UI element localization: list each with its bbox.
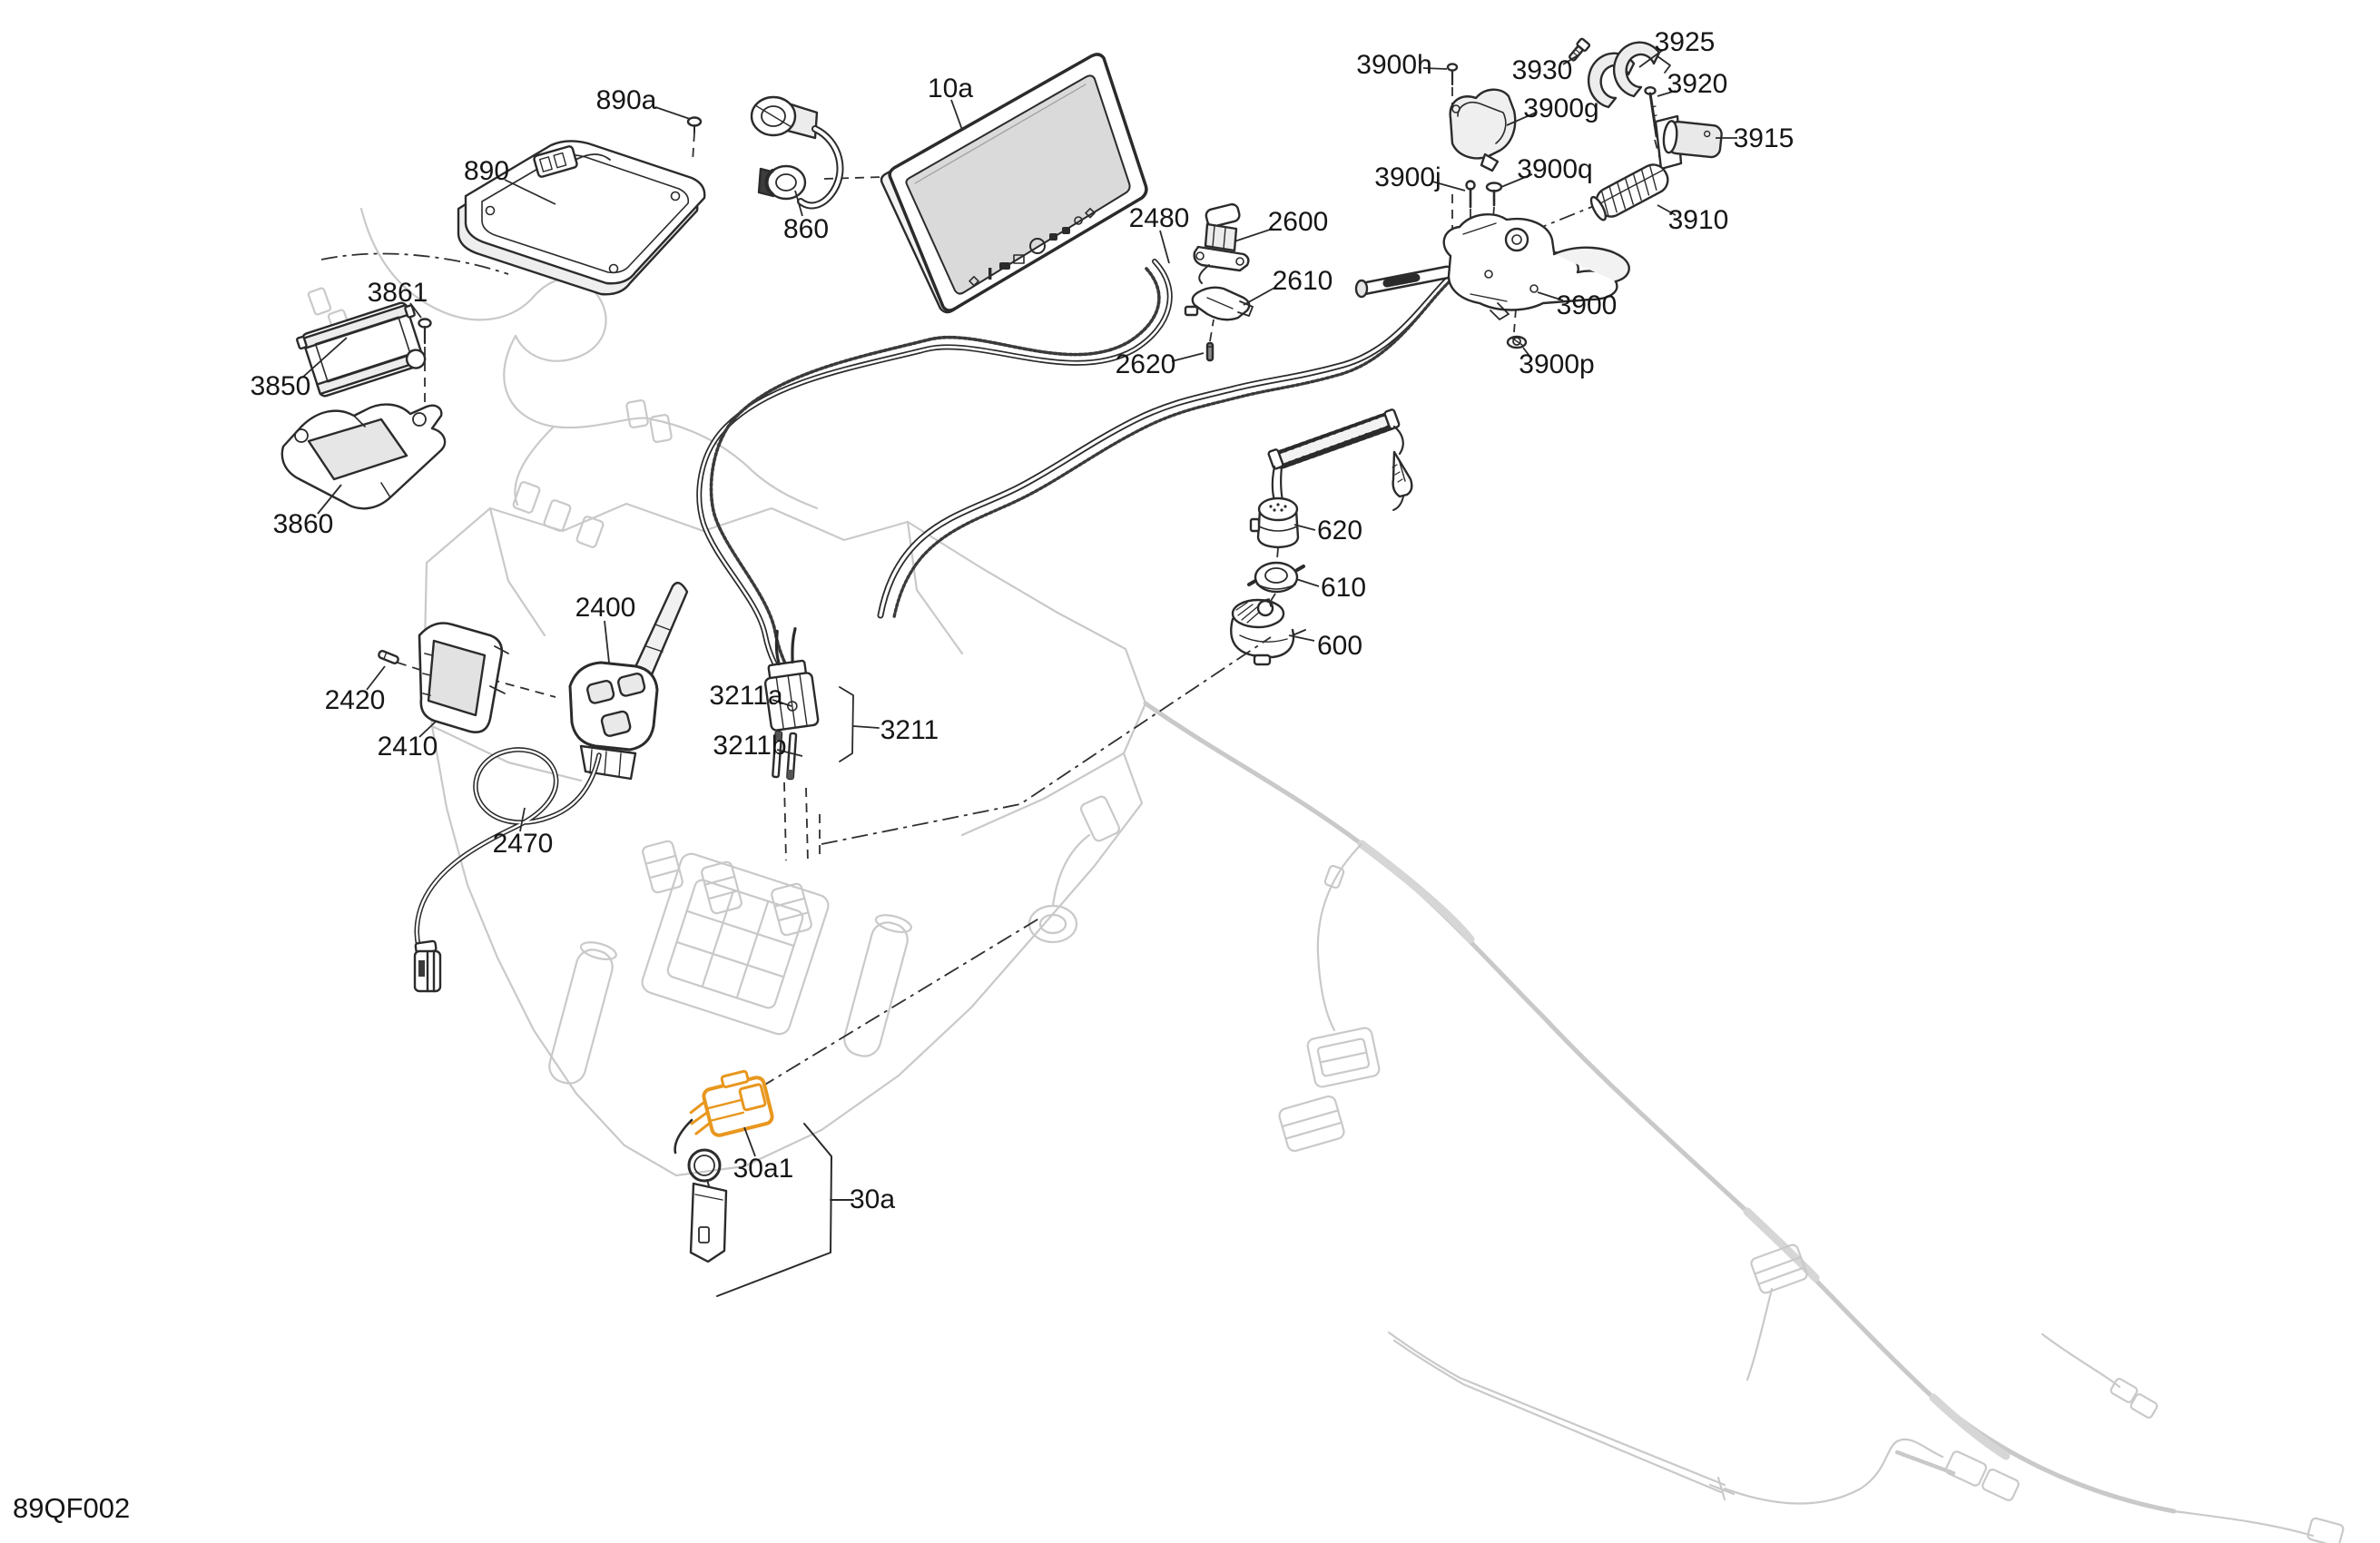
callout-610: 610 [1321, 573, 1366, 603]
callout-3920: 3920 [1667, 69, 1728, 99]
part-890-module [458, 118, 704, 295]
callout-30a: 30a [850, 1184, 895, 1214]
callout-3925: 3925 [1655, 27, 1716, 57]
callout-3910: 3910 [1668, 205, 1729, 235]
parts-diagram-page: 890a 890 860 10a 2480 2600 2610 2620 390… [0, 0, 2380, 1543]
callout-3915: 3915 [1734, 123, 1795, 153]
callout-860: 860 [783, 214, 829, 244]
part-2480-cable [699, 261, 1169, 683]
part-890a-screw [688, 118, 701, 133]
callout-3211a: 3211a [709, 681, 783, 711]
callout-2420: 2420 [325, 685, 386, 715]
part-600-dess-post [1231, 599, 1305, 664]
part-3915-cylinder [1656, 116, 1723, 169]
callout-3900: 3900 [1557, 290, 1618, 320]
part-2610-bracket [1185, 288, 1253, 320]
callout-2410: 2410 [378, 732, 438, 762]
callout-2470: 2470 [493, 829, 554, 859]
part-10a-display [881, 54, 1146, 312]
callout-2610: 2610 [1273, 266, 1333, 296]
part-2620-pin [1207, 343, 1213, 360]
part-620-tether-cap [1251, 498, 1298, 547]
callout-2400: 2400 [575, 593, 636, 623]
callout-2600: 2600 [1268, 207, 1329, 237]
callout-3900q: 3900q [1517, 154, 1592, 184]
callout-3860: 3860 [273, 509, 334, 539]
part-3900j-screw [1467, 182, 1475, 208]
part-30a-bracket-mark [717, 1124, 853, 1296]
part-610-ring-nut [1249, 563, 1303, 592]
callout-3211: 3211 [880, 715, 939, 745]
part-handlebar-cable [880, 270, 1457, 617]
exploded-parts-diagram: 890a 890 860 10a 2480 2600 2610 2620 390… [0, 0, 2380, 1543]
callout-3900p: 3900p [1519, 349, 1594, 379]
part-3900p-screw [1508, 337, 1526, 348]
callout-890a: 890a [596, 85, 657, 115]
part-3211-bracket-mark [840, 687, 879, 762]
part-2600-switch [1195, 203, 1249, 283]
callout-3861: 3861 [368, 278, 428, 308]
callout-2480: 2480 [1129, 203, 1190, 233]
part-3860-bracket [282, 405, 445, 509]
part-tether-coil [1268, 409, 1411, 510]
callout-3850: 3850 [251, 371, 311, 401]
callout-3900h: 3900h [1356, 50, 1431, 80]
callout-3211b: 3211b [713, 731, 786, 761]
figure-code: 89QF002 [13, 1492, 130, 1524]
part-3900g-bracket [1451, 90, 1516, 171]
tether-clip [1392, 452, 1411, 510]
callout-3900g: 3900g [1523, 93, 1598, 123]
callout-10a: 10a [928, 74, 973, 103]
callout-890: 890 [464, 156, 509, 186]
callout-600: 600 [1317, 631, 1362, 661]
callout-2620: 2620 [1116, 349, 1176, 379]
part-2410-cover [419, 624, 508, 732]
callout-3900j: 3900j [1374, 162, 1441, 192]
part-3861-screw [419, 319, 431, 344]
part-3900h-screw [1448, 64, 1457, 84]
tether-tag [691, 1184, 726, 1262]
callout-620: 620 [1317, 516, 1362, 545]
part-3910-sleeve [1588, 160, 1673, 223]
callout-30a1: 30a1 [733, 1154, 794, 1184]
callout-3930: 3930 [1512, 55, 1573, 85]
part-2420-pin [378, 650, 398, 664]
part-3900q-screw [1487, 183, 1501, 206]
part-860-connector [752, 97, 841, 205]
background-harness-art [308, 209, 2344, 1543]
